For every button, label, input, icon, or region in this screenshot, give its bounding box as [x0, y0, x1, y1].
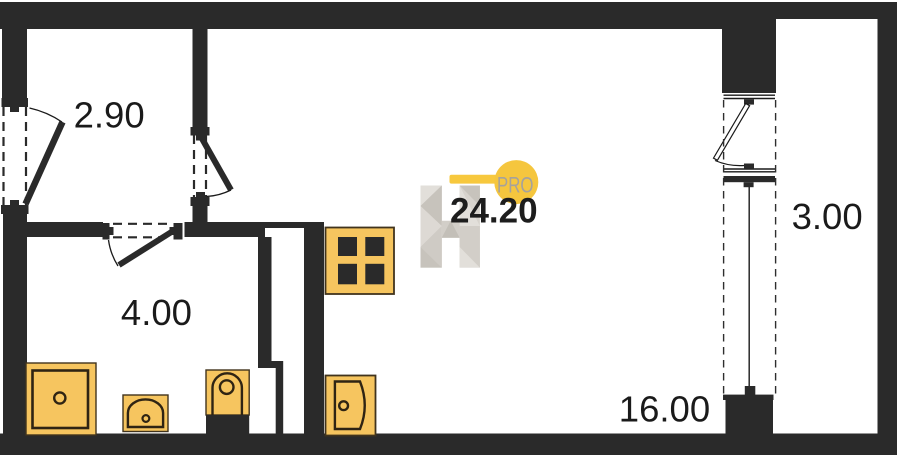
svg-text:3.00: 3.00	[792, 196, 863, 237]
svg-text:16.00: 16.00	[619, 388, 710, 429]
svg-text:24.20: 24.20	[450, 192, 538, 231]
svg-text:2.90: 2.90	[74, 95, 145, 136]
svg-text:4.00: 4.00	[121, 292, 192, 333]
